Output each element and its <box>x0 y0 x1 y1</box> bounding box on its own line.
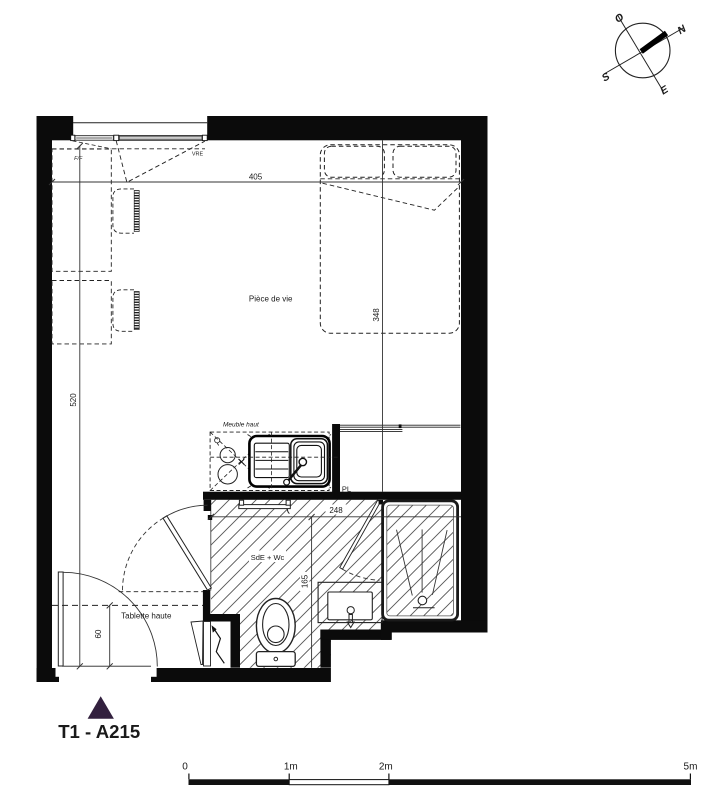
svg-text:PL: PL <box>342 484 351 493</box>
svg-text:165: 165 <box>301 574 310 588</box>
svg-text:520: 520 <box>69 393 78 407</box>
svg-text:Tablette haute: Tablette haute <box>121 611 172 620</box>
svg-text:Meuble haut: Meuble haut <box>223 421 260 428</box>
svg-text:VRE: VRE <box>192 152 204 158</box>
svg-text:5m: 5m <box>684 762 698 773</box>
svg-text:248: 248 <box>329 506 343 515</box>
svg-text:T1 - A215: T1 - A215 <box>58 721 140 742</box>
svg-text:SdE + Wc: SdE + Wc <box>251 553 285 562</box>
svg-text:2m: 2m <box>379 762 393 773</box>
svg-text:60: 60 <box>94 629 103 638</box>
svg-text:405: 405 <box>249 173 263 182</box>
svg-text:348: 348 <box>372 308 381 322</box>
svg-text:0: 0 <box>182 762 188 773</box>
svg-text:1m: 1m <box>284 762 298 773</box>
svg-text:F/F: F/F <box>74 156 83 162</box>
svg-text:Pièce de vie: Pièce de vie <box>249 294 293 303</box>
